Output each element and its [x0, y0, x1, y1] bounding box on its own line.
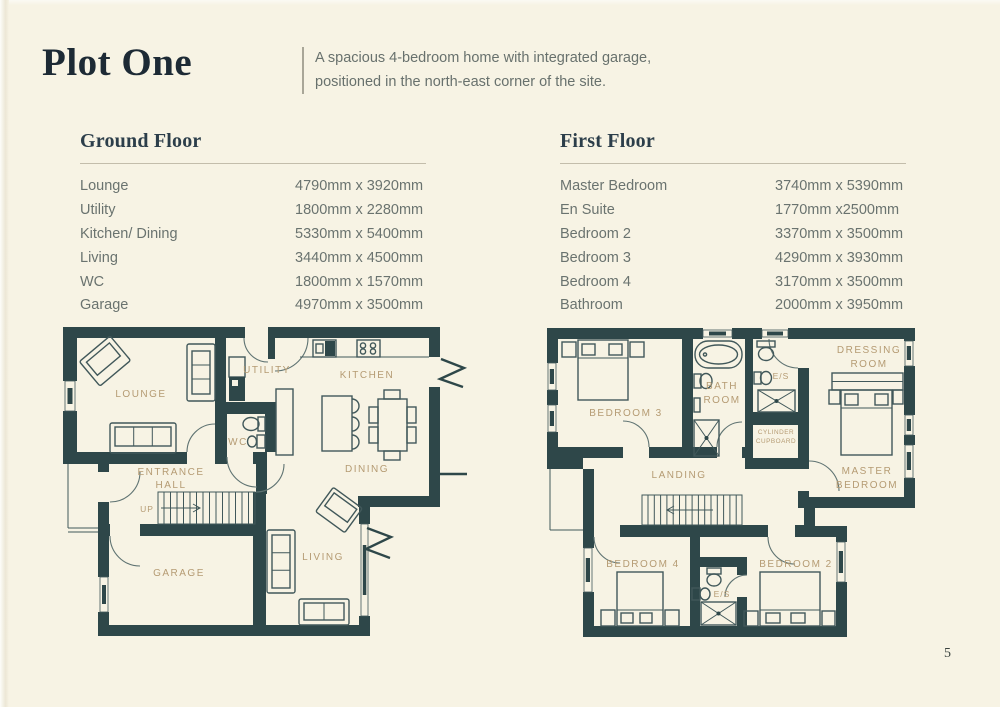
room-label-kitchen: KITCHEN: [340, 370, 394, 381]
stairs-label-up: UP: [140, 504, 154, 514]
table-row: Bedroom 43170mm x 3500mm: [560, 270, 906, 294]
ground-floor-section: Ground Floor Lounge4790mm x 3920mm Utili…: [80, 130, 430, 317]
void-outline: [550, 469, 583, 530]
room-label-dressing-2: ROOM: [850, 359, 887, 370]
table-row: Bathroom2000mm x 3950mm: [560, 293, 906, 317]
room-dimensions: 4290mm x 3930mm: [775, 250, 906, 266]
first-floor-heading: First Floor: [560, 130, 910, 153]
first-floor-section: First Floor Master Bedroom3740mm x 5390m…: [560, 130, 910, 317]
room-name: WC: [80, 274, 295, 290]
first-floor-plan: BEDROOM 3 BATH ROOM E/S DRESSING ROOM CY…: [545, 328, 917, 644]
room-dimensions: 4970mm x 3500mm: [295, 297, 426, 313]
staircase: [642, 495, 742, 525]
bifold-door-zigzag: [440, 359, 464, 387]
room-label-dressing-1: DRESSING: [837, 345, 901, 356]
porch-outline: [68, 464, 98, 532]
room-label-landing: LANDING: [652, 470, 707, 481]
room-label-garage: GARAGE: [153, 568, 205, 579]
room-label-living: LIVING: [302, 552, 344, 563]
ground-floor-plan: LOUNGE UTILITY KITCHEN WC ENTRANCE HALL …: [63, 327, 470, 643]
bedroom2-furniture: [744, 572, 835, 626]
plot-description: A spacious 4-bedroom home with integrate…: [315, 46, 651, 94]
dining-table: [369, 390, 416, 460]
utility-appliances: [229, 357, 245, 401]
room-name: Garage: [80, 297, 295, 313]
room-name: Bedroom 2: [560, 226, 775, 242]
table-row: Bedroom 23370mm x 3500mm: [560, 222, 906, 246]
description-line-2: positioned in the north-east corner of t…: [315, 70, 651, 94]
first-floor-dimensions-table: Master Bedroom3740mm x 5390mm En Suite17…: [560, 174, 906, 317]
staircase: [158, 492, 255, 524]
room-dimensions: 3740mm x 5390mm: [775, 178, 906, 194]
heading-rule: [80, 163, 426, 164]
room-label-bath-2: ROOM: [703, 395, 740, 406]
room-dimensions: 4790mm x 3920mm: [295, 178, 426, 194]
page-number: 5: [944, 646, 951, 662]
table-row: En Suite1770mm x2500mm: [560, 198, 906, 222]
kitchen-fixtures: [276, 340, 429, 455]
room-name: Living: [80, 250, 295, 266]
page-edge-top: [0, 0, 1000, 5]
description-line-1: A spacious 4-bedroom home with integrate…: [315, 46, 651, 70]
room-dimensions: 1800mm x 1570mm: [295, 274, 426, 290]
room-dimensions: 3370mm x 3500mm: [775, 226, 906, 242]
brochure-page: Plot One A spacious 4-bedroom home with …: [0, 0, 1000, 707]
room-label-bedroom4: BEDROOM 4: [606, 559, 680, 570]
room-name: Bedroom 4: [560, 274, 775, 290]
room-name: En Suite: [560, 202, 775, 218]
room-label-wc: WC: [228, 437, 248, 448]
room-label-master-2: BEDROOM: [836, 480, 898, 491]
page-title: Plot One: [42, 40, 192, 85]
room-dimensions: 5330mm x 5400mm: [295, 226, 426, 242]
room-name: Kitchen/ Dining: [80, 226, 295, 242]
room-label-cylinder-1: CYLINDER: [758, 429, 794, 436]
room-label-ensuite-top: E/S: [773, 371, 790, 381]
title-divider: [302, 47, 304, 94]
room-dimensions: 2000mm x 3950mm: [775, 297, 906, 313]
bedroom3-furniture: [562, 340, 644, 400]
room-label-bedroom3: BEDROOM 3: [589, 408, 663, 419]
patio-door-zigzag: [366, 528, 391, 558]
ground-floor-dimensions-table: Lounge4790mm x 3920mm Utility1800mm x 22…: [80, 174, 426, 317]
ground-floor-heading: Ground Floor: [80, 130, 430, 153]
table-row: Utility1800mm x 2280mm: [80, 198, 426, 222]
table-row: Master Bedroom3740mm x 5390mm: [560, 174, 906, 198]
room-label-ensuite-bottom: E/S: [714, 589, 731, 599]
room-dimensions: 3170mm x 3500mm: [775, 274, 906, 290]
room-name: Bathroom: [560, 297, 775, 313]
room-label-bedroom2: BEDROOM 2: [759, 559, 833, 570]
room-label-dining: DINING: [345, 464, 389, 475]
page-edge-left: [0, 0, 9, 707]
room-label-entrance-2: HALL: [155, 480, 186, 491]
room-name: Lounge: [80, 178, 295, 194]
heading-rule: [560, 163, 906, 164]
master-bedroom-furniture: [829, 373, 903, 455]
room-label-bath-1: BATH: [706, 381, 738, 392]
table-row: Lounge4790mm x 3920mm: [80, 174, 426, 198]
room-dimensions: 1800mm x 2280mm: [295, 202, 426, 218]
room-dimensions: 3440mm x 4500mm: [295, 250, 426, 266]
table-row: WC1800mm x 1570mm: [80, 270, 426, 294]
room-name: Bedroom 3: [560, 250, 775, 266]
room-name: Utility: [80, 202, 295, 218]
room-label-lounge: LOUNGE: [115, 389, 166, 400]
room-label-utility: UTILITY: [243, 365, 291, 376]
table-row: Living3440mm x 4500mm: [80, 246, 426, 270]
table-row: Garage4970mm x 3500mm: [80, 293, 426, 317]
room-dimensions: 1770mm x2500mm: [775, 202, 906, 218]
room-label-cylinder-2: CUPBOARD: [756, 438, 796, 445]
table-row: Bedroom 34290mm x 3930mm: [560, 246, 906, 270]
bedroom4-furniture: [601, 572, 679, 626]
room-label-entrance-1: ENTRANCE: [137, 467, 204, 478]
room-label-master-1: MASTER: [842, 466, 893, 477]
table-row: Kitchen/ Dining5330mm x 5400mm: [80, 222, 426, 246]
room-name: Master Bedroom: [560, 178, 775, 194]
